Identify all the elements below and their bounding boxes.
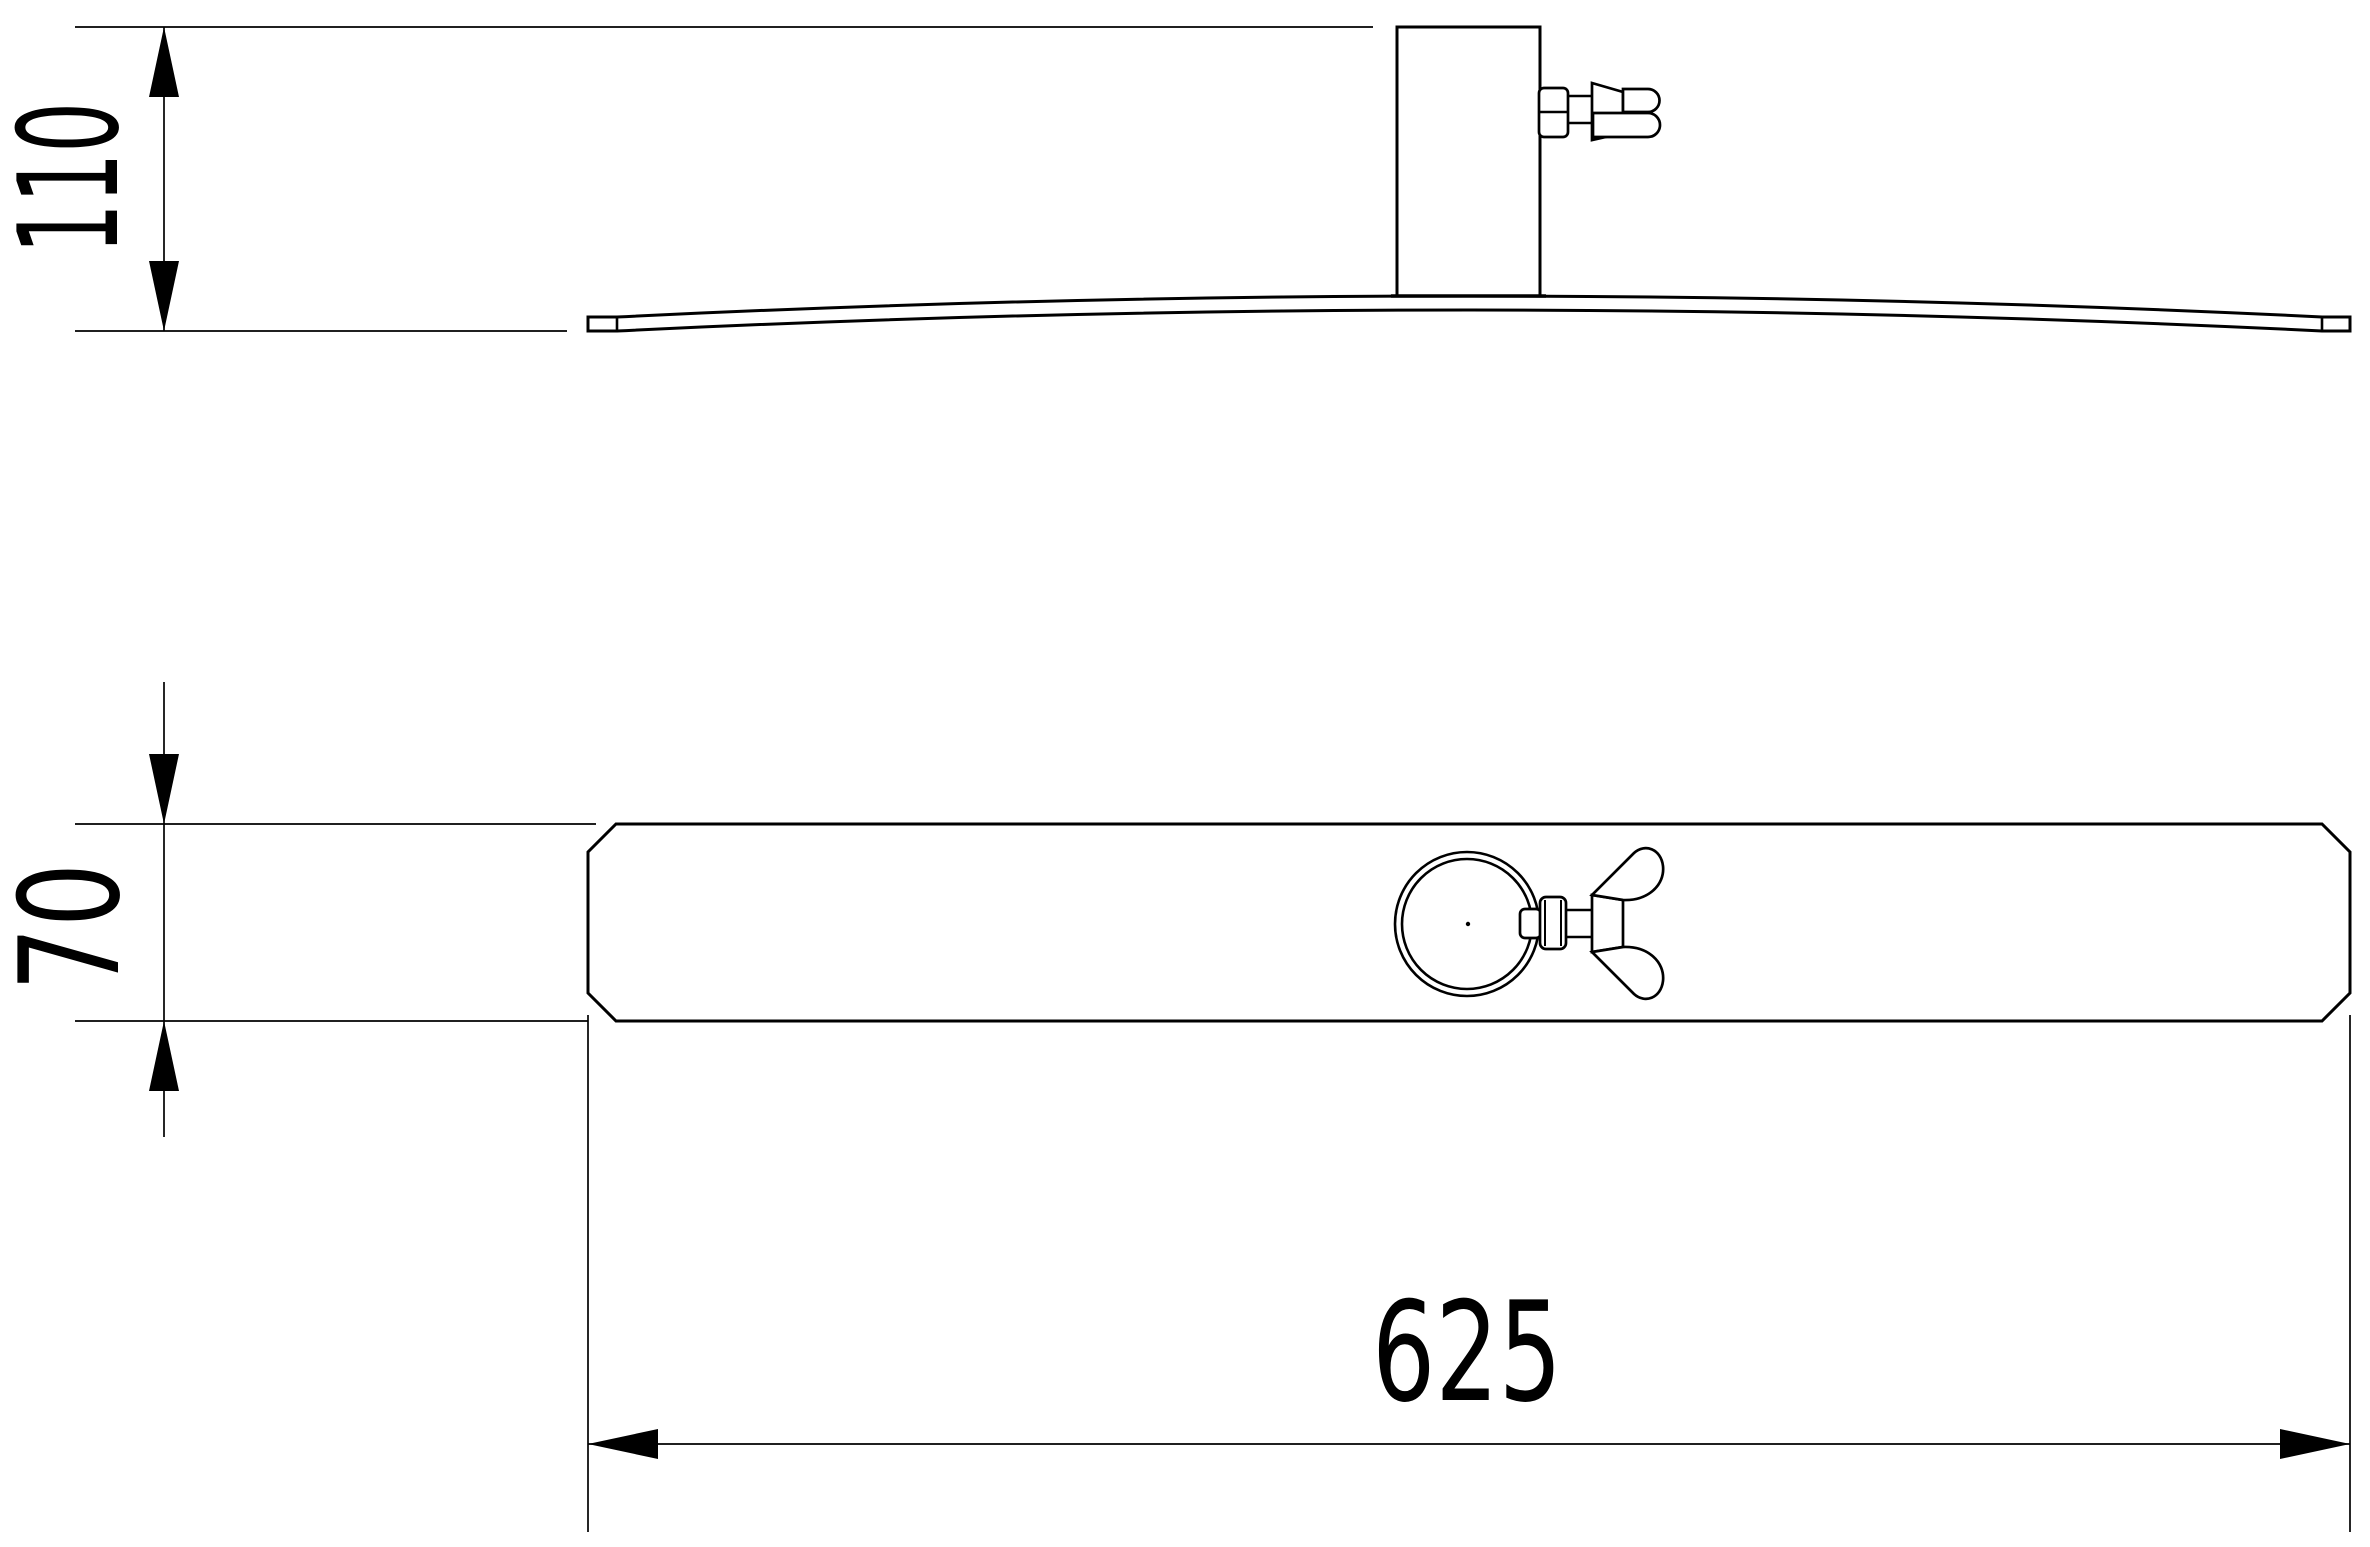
arrowhead-down-icon <box>149 261 179 331</box>
wing-lower-plan <box>1592 947 1663 999</box>
wing-bolt-plan <box>1520 848 1663 999</box>
wing-lower-side <box>1593 113 1660 137</box>
bolt-shaft-plan <box>1566 910 1592 937</box>
drawing-canvas: 110 70 625 <box>0 0 2370 1547</box>
wing-bolt-side <box>1539 83 1660 140</box>
technical-drawing: 110 70 625 <box>0 0 2370 1547</box>
wing-upper-plan <box>1592 848 1663 900</box>
dim-label-length: 625 <box>1372 1272 1562 1433</box>
arrowhead-up-icon <box>149 27 179 97</box>
side-view <box>588 27 2350 331</box>
dim-label-height: 110 <box>0 102 150 254</box>
dimension-plate-depth: 70 <box>0 682 596 1137</box>
bolt-shaft-side <box>1568 96 1592 123</box>
tube-socket-side <box>1397 27 1540 296</box>
dimension-plate-length: 625 <box>588 1015 2350 1532</box>
dimension-overall-height: 110 <box>0 27 1373 331</box>
plan-view <box>588 824 2350 1021</box>
arrowhead-right-icon <box>2280 1429 2350 1459</box>
arrowhead-down-icon <box>149 754 179 824</box>
wing-body-plan <box>1592 895 1623 952</box>
arrowhead-left-icon <box>588 1429 658 1459</box>
wing-upper-side <box>1623 89 1660 112</box>
bolt-tip-plan <box>1520 909 1541 938</box>
arrowhead-up-icon <box>149 1021 179 1091</box>
dim-label-depth: 70 <box>0 863 151 991</box>
hex-nut-plan <box>1540 897 1566 949</box>
tube-center-mark <box>1466 922 1470 926</box>
base-plate-side-outline <box>588 296 2350 331</box>
